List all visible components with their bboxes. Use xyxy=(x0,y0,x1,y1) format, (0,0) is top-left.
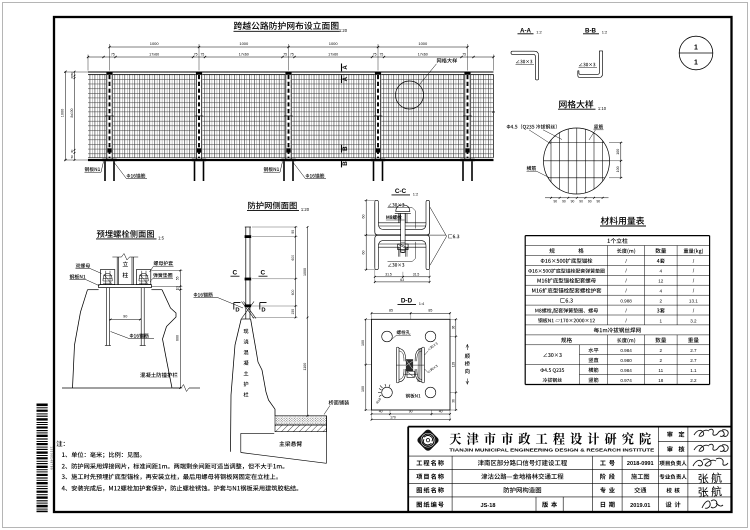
svg-text:12: 12 xyxy=(658,279,664,284)
svg-text:600: 600 xyxy=(291,289,295,295)
svg-text:60: 60 xyxy=(362,215,366,219)
svg-text:90: 90 xyxy=(571,200,575,204)
svg-text:1000: 1000 xyxy=(239,41,249,46)
svg-text:1: 1 xyxy=(694,45,698,52)
svg-text:2.7: 2.7 xyxy=(690,358,697,363)
svg-text:D: D xyxy=(261,308,265,314)
svg-text:100: 100 xyxy=(361,340,365,346)
svg-text:0.974: 0.974 xyxy=(620,378,632,383)
svg-text:17x60: 17x60 xyxy=(418,52,428,56)
svg-text:100: 100 xyxy=(616,149,620,155)
svg-text:90: 90 xyxy=(553,200,557,204)
svg-text:90: 90 xyxy=(291,230,295,234)
svg-text:13: 13 xyxy=(176,286,180,290)
svg-text:B: B xyxy=(342,161,349,166)
svg-text:C: C xyxy=(260,270,265,277)
svg-text:2.7: 2.7 xyxy=(690,348,697,353)
svg-text:100: 100 xyxy=(361,386,365,392)
svg-text:85: 85 xyxy=(428,309,432,313)
svg-text:90: 90 xyxy=(562,200,566,204)
svg-text:1 3 5 0 0 1 4 8 7 8 9: 1 3 5 0 0 1 4 8 7 8 9 xyxy=(49,446,53,470)
svg-text:C: C xyxy=(232,270,237,277)
svg-text:1000: 1000 xyxy=(329,41,339,46)
svg-text:1000: 1000 xyxy=(61,109,65,117)
svg-text:1000: 1000 xyxy=(150,41,160,46)
svg-text:B: B xyxy=(342,146,349,151)
svg-text:2: 2 xyxy=(660,358,663,363)
svg-text:1:5: 1:5 xyxy=(158,236,164,241)
svg-text:1:2: 1:2 xyxy=(413,192,419,197)
svg-text:2018-0991: 2018-0991 xyxy=(627,461,654,467)
svg-text:1000: 1000 xyxy=(418,41,428,46)
svg-text:1: 1 xyxy=(694,60,698,67)
svg-text:17x60: 17x60 xyxy=(328,52,338,56)
svg-text:90: 90 xyxy=(588,200,592,204)
svg-text:75: 75 xyxy=(111,52,115,56)
svg-text:2: 2 xyxy=(660,348,663,353)
svg-text:170: 170 xyxy=(390,415,396,419)
svg-text:2019.01: 2019.01 xyxy=(630,503,650,509)
svg-text:0.988: 0.988 xyxy=(620,299,632,304)
svg-text:75: 75 xyxy=(201,52,205,56)
svg-text:1000: 1000 xyxy=(303,268,307,276)
svg-text:0.984: 0.984 xyxy=(620,368,632,373)
svg-text:17x60: 17x60 xyxy=(149,52,159,56)
svg-text:D: D xyxy=(235,308,239,314)
svg-text:75: 75 xyxy=(194,52,198,56)
svg-text:600: 600 xyxy=(291,255,295,261)
svg-text:31.5: 31.5 xyxy=(385,273,392,277)
svg-text:A: A xyxy=(342,76,349,81)
svg-text:150: 150 xyxy=(291,309,295,315)
svg-text:75: 75 xyxy=(462,52,466,56)
svg-text:1: 1 xyxy=(660,318,663,323)
svg-text:1:4: 1:4 xyxy=(419,301,425,306)
svg-text:1100: 1100 xyxy=(303,363,307,371)
svg-text:4: 4 xyxy=(660,289,663,294)
svg-text:D-D: D-D xyxy=(401,298,413,305)
svg-text:A-A: A-A xyxy=(520,27,532,34)
svg-text:18: 18 xyxy=(658,378,664,383)
svg-text:TIANJIN MUNICIPAL ENGINEERING: TIANJIN MUNICIPAL ENGINEERING DESIGN & R… xyxy=(449,447,654,452)
svg-text:55: 55 xyxy=(176,276,180,280)
svg-text:13.1: 13.1 xyxy=(689,299,698,304)
svg-text:4: 4 xyxy=(660,269,663,274)
svg-text:1:2: 1:2 xyxy=(536,30,542,35)
svg-text:90: 90 xyxy=(123,315,127,319)
svg-text:30: 30 xyxy=(70,75,74,79)
svg-text:17x60: 17x60 xyxy=(239,52,249,56)
svg-text:0.984: 0.984 xyxy=(620,348,632,353)
svg-text:60: 60 xyxy=(362,251,366,255)
svg-text:36: 36 xyxy=(451,399,455,403)
svg-text:85: 85 xyxy=(389,309,393,313)
svg-text:B-B: B-B xyxy=(585,27,597,34)
svg-text:40: 40 xyxy=(439,410,443,414)
svg-text:C-C: C-C xyxy=(395,188,407,195)
svg-text:50: 50 xyxy=(70,155,74,159)
svg-text:0.980: 0.980 xyxy=(620,358,632,363)
svg-text:2.2: 2.2 xyxy=(690,378,697,383)
svg-text:600: 600 xyxy=(176,335,180,341)
svg-text:40: 40 xyxy=(379,410,383,414)
svg-text:JS-18: JS-18 xyxy=(481,503,496,509)
svg-text:75: 75 xyxy=(373,52,377,56)
svg-text:75: 75 xyxy=(283,52,287,56)
svg-text:1:20: 1:20 xyxy=(339,28,348,33)
svg-text:8x100: 8x100 xyxy=(70,108,74,117)
svg-text:11: 11 xyxy=(658,368,663,373)
svg-text:75: 75 xyxy=(290,52,294,56)
svg-text:1:2: 1:2 xyxy=(602,30,608,35)
svg-text:3.2: 3.2 xyxy=(690,318,697,323)
svg-text:90: 90 xyxy=(409,410,413,414)
svg-text:2: 2 xyxy=(660,299,663,304)
svg-text:100: 100 xyxy=(616,166,620,172)
svg-text:128: 128 xyxy=(451,362,455,368)
svg-text:63: 63 xyxy=(400,278,404,282)
svg-text:1:10: 1:10 xyxy=(598,106,607,111)
svg-text:1.1: 1.1 xyxy=(690,368,697,373)
svg-text:90: 90 xyxy=(596,200,600,204)
svg-text:30: 30 xyxy=(70,149,74,153)
svg-text:75: 75 xyxy=(380,52,384,56)
svg-text:36: 36 xyxy=(451,326,455,330)
svg-text:50: 50 xyxy=(70,72,74,76)
svg-text:1:20: 1:20 xyxy=(301,207,310,212)
svg-text:31.5: 31.5 xyxy=(413,273,420,277)
svg-text:A: A xyxy=(342,65,349,70)
svg-text:90: 90 xyxy=(579,200,583,204)
